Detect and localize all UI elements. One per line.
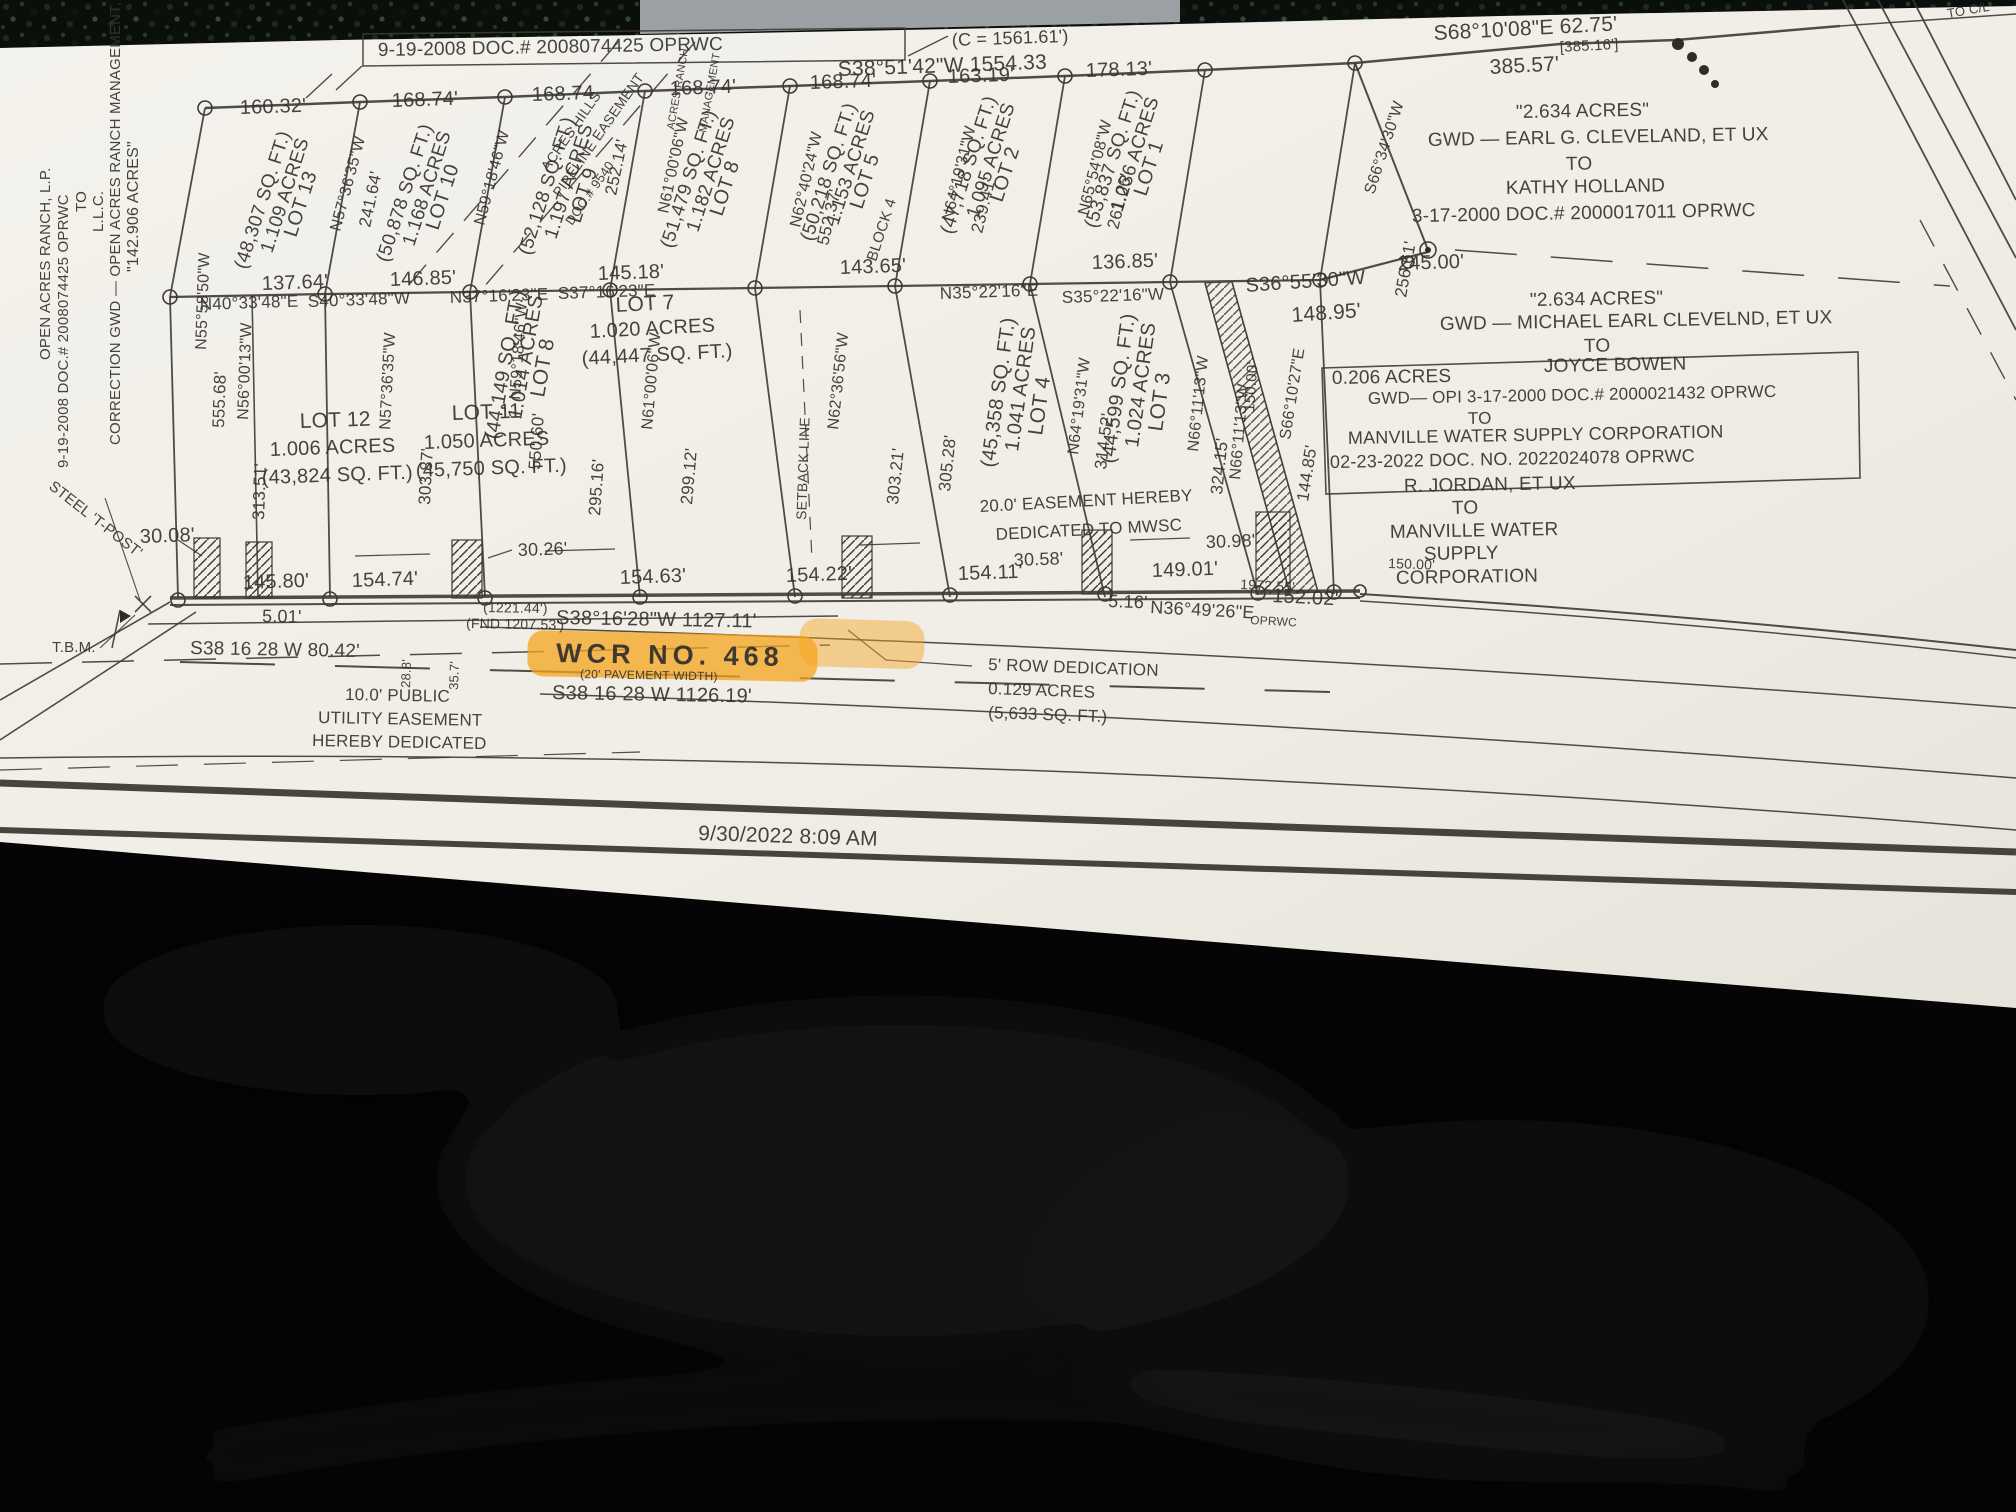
dimension-label: 160.32' [239,95,306,119]
dimension-label: 245.00' [1397,251,1464,275]
deed-note: "2.634 ACRES" [1516,100,1650,123]
dimension-label: 313.51' [249,463,270,520]
monument-note: T.B.M. [52,639,96,656]
deed-note: TO [1584,336,1611,357]
deed-note: SUPPLY [1424,543,1499,565]
dimension-label: 30.26' [517,538,567,560]
deed-note: MANVILLE WATER [1390,519,1559,543]
dimension-label: 149.01' [1151,558,1218,582]
dimension-label: 154.11' [957,561,1023,585]
dimension-label: 136.85' [1091,250,1158,274]
dimension-label: (C = 1561.61') [951,26,1068,50]
dimension-label: 5.16' [1108,591,1148,612]
dimension-label: (FND 1207.53') [466,615,564,633]
dimension-label: 35.7' [446,661,462,690]
bearing-label: N35°22'16"E [939,281,1038,303]
dimension-label: 168.74' [391,88,458,112]
dimension-label: (1221.44') [483,599,548,616]
bearing-label: N56°00'13"W [235,322,255,421]
dimension-label: 150.00' [1241,361,1261,412]
bearing-label: S38 16 28 W 1126.19' [552,682,752,707]
row-dedication-note: 0.129 ACRES [988,679,1096,702]
dimension-label: 154.22' [785,563,852,587]
dimension-label: 148.95' [1291,299,1362,327]
deed-note: TO [1566,154,1593,175]
dimension-label: 178.13' [1085,58,1152,82]
dimension-label: 154.74' [351,568,418,592]
dimension-label: 154.63' [619,565,686,589]
dimension-label: 30.98' [1205,530,1255,552]
deed-note: 0.206 ACRES [1332,366,1452,389]
deed-note: "2.634 ACRES" [1530,288,1664,311]
dimension-label: 30.08' [139,524,195,548]
deed-note: KATHY HOLLAND [1506,175,1666,199]
dimension-label: 555.68' [209,371,230,428]
deed-note: R. JORDAN, ET UX [1404,473,1576,497]
deed-note-left: L.L.C. [90,191,107,232]
dimension-label: 28.8' [398,659,414,688]
bearing-label: S35°22'16"W [1061,284,1164,307]
deed-note-left: CORRECTION GWD — OPEN ACRES RANCH MANAGE… [107,2,124,445]
lot-area: 1.006 ACRES [269,435,395,461]
deed-note: CORPORATION [1396,566,1539,589]
deed-note-left: "142.906 ACRES" [125,141,142,272]
dimension-label: 145.80' [242,570,309,594]
utility-easement-note: UTILITY EASEMENT [318,708,483,730]
dimension-label: 143.65' [839,255,906,279]
dimension-label: 295.16' [585,458,608,516]
annotation: OPRWC [1250,613,1298,629]
deed-note: JOYCE BOWEN [1544,354,1687,377]
annotation: (20' PAVEMENT WIDTH) [580,667,718,683]
bearing-label: S38 16 28 W 80.42' [190,638,360,662]
survey-plat-photo: 9/30/2022 8:09 AM 9-19-2008 DOC.# 200807… [0,0,2016,1512]
dimension-label: [385.16'] [1559,36,1619,56]
dimension-label: 146.85' [389,267,456,291]
deed-note-left: 9-19-2008 DOC.# 2008074425 OPRWC [55,194,72,468]
bearing-label: N55°58'50"W [193,252,213,351]
dimension-label: 163.19' [947,64,1014,88]
dimension-label: 550.60' [525,412,548,470]
plat-scene: 9/30/2022 8:09 AM 9-19-2008 DOC.# 200807… [0,0,2016,1512]
dimension-label: 168.74' [809,70,876,94]
lot-label: LOT 7 [615,291,675,317]
deed-note: TO [1452,498,1479,519]
dimension-label: 5.01' [262,606,302,627]
dimension-label: 1972.55' [1240,576,1296,595]
bearing-label: S40°33'48"W [307,288,410,311]
lot-label: LOT 12 [299,408,371,433]
deed-note-left: TO [73,191,90,212]
dimension-label: 303.87' [415,448,437,506]
bearing-label: N40°33'48"E [199,292,298,314]
deed-note-left: OPEN ACRES RANCH, L.P. [37,167,54,360]
bearing-label: S38°16'28"W 1127.11' [556,607,757,632]
utility-easement-note: HEREBY DEDICATED [312,731,487,753]
dimension-label: 385.57' [1489,52,1560,79]
